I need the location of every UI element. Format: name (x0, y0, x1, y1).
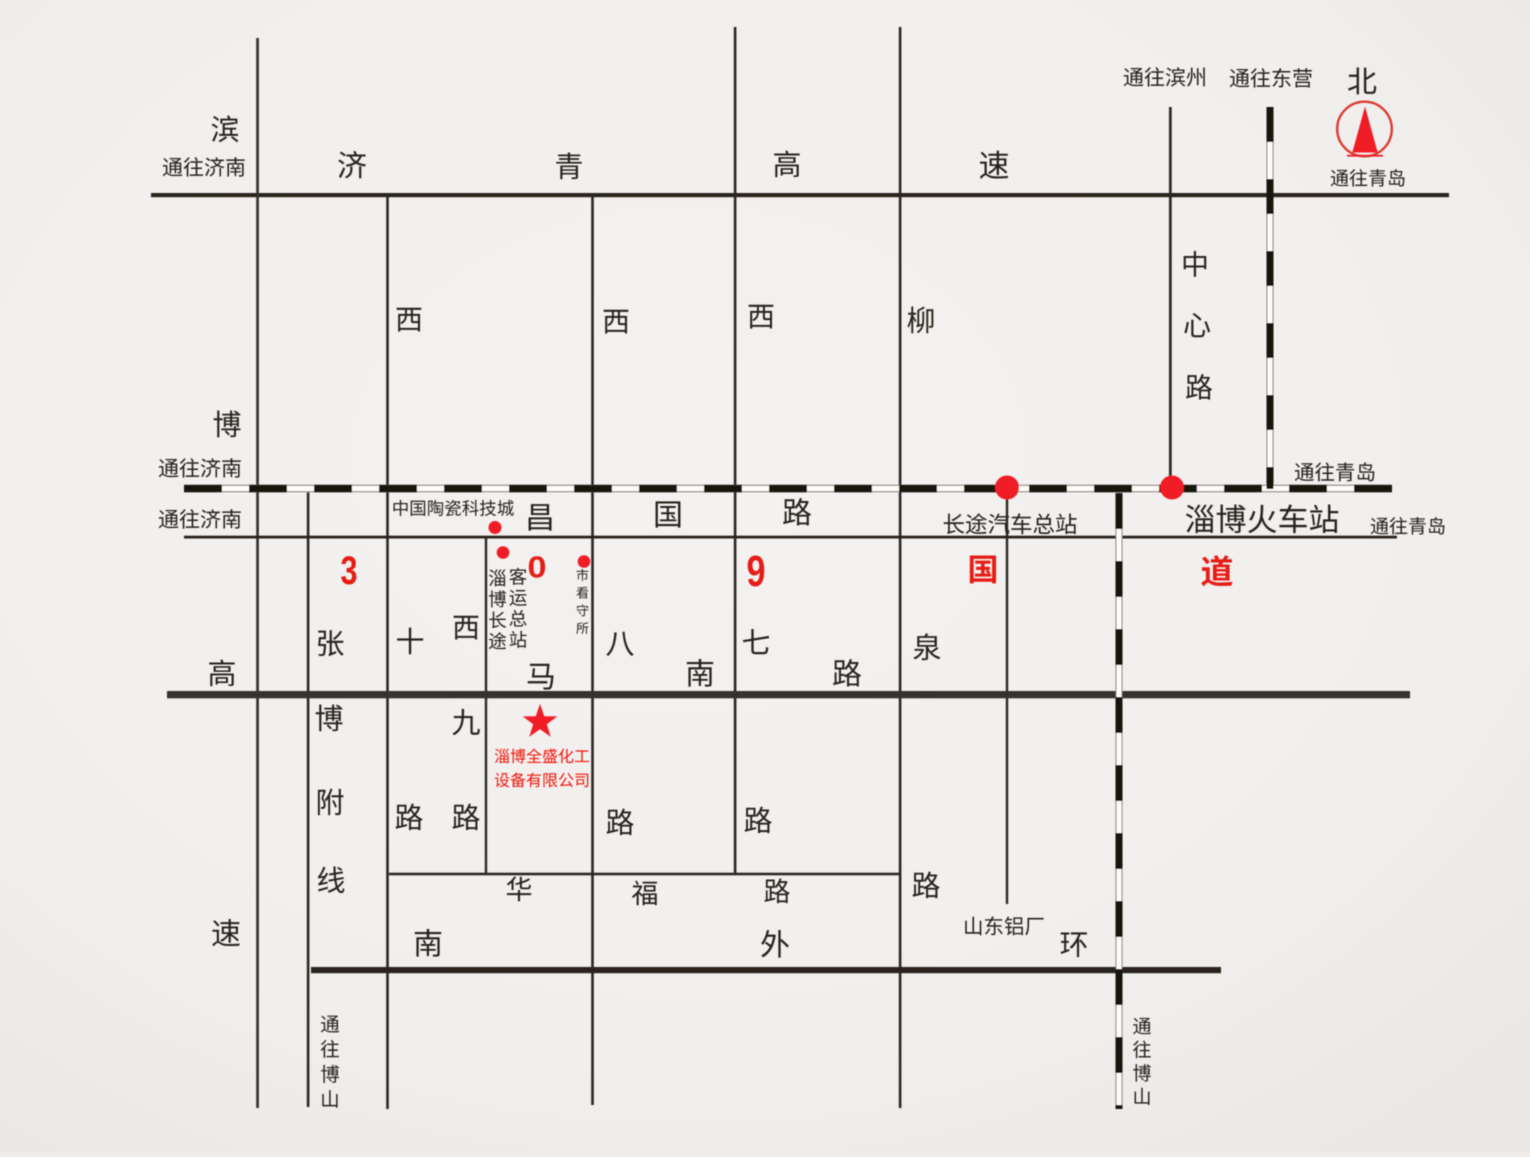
svg-text:3: 3 (341, 549, 358, 593)
svg-text:9: 9 (747, 547, 766, 596)
svg-text:0: 0 (528, 550, 547, 585)
